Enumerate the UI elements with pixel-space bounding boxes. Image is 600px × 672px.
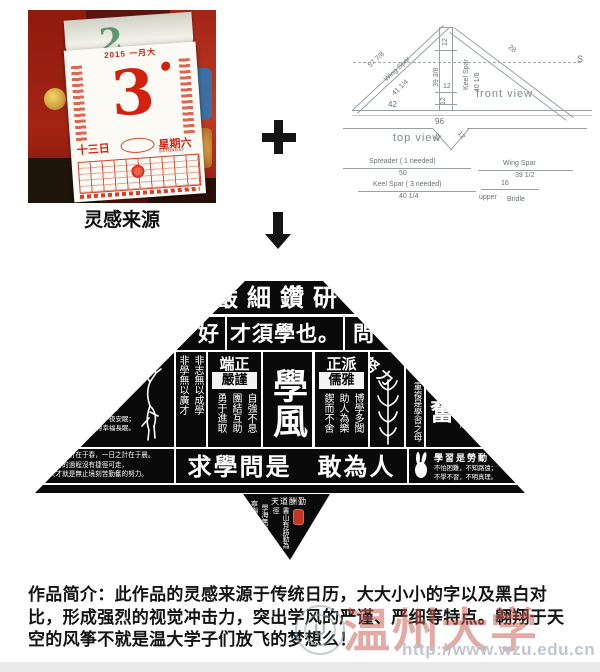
seal-stamp-icon [293, 509, 304, 525]
kite-lefttip-cell: 一年之計在于春，一日之計在于晨。 學習的過程沒有捷徑可走， 天才就是無止境刻苦勤… [35, 449, 174, 483]
kite-bottom-rail [35, 485, 525, 493]
part-wing-line [478, 170, 573, 171]
lefttip-line3: 天才就是無止境刻苦勤奮的努力。 [49, 470, 173, 480]
fen-quote-line2: 你就是赢家。 [459, 421, 501, 432]
calendar-right-column [179, 58, 195, 137]
inspiration-label: 灵感来源 [28, 205, 216, 232]
part-bridle-line [481, 189, 539, 190]
kite-row2-center: 才須學也。 [227, 317, 343, 350]
part-bridle-label: Bridle [507, 196, 525, 203]
dim-keel-label: Keel Spar [463, 59, 470, 90]
ruya-box: 儒雅 [319, 372, 364, 389]
horse-icon [161, 61, 171, 71]
part-wing-name: Wing Spar [503, 160, 536, 167]
university-logo-letter: U [304, 614, 336, 646]
dim-spreader-end: S [577, 54, 583, 64]
qin-character: 勤 [93, 378, 120, 417]
university-logo-icon: U [295, 605, 345, 655]
calendar-day-cn: 十三日 [76, 140, 110, 158]
university-url-watermark: http://www.wzu.edu.cn [402, 640, 595, 660]
duanzheng-columns: 自強不息 團結互助 勇于進取 [211, 393, 258, 445]
kite-proverb-columns: 非志無以成學 非學無以廣才 [176, 352, 206, 447]
part-spreader-len: 50 [399, 170, 407, 177]
plant-icon [376, 378, 400, 446]
keel-line-right [452, 27, 453, 110]
part-wing-len: 39 1/2 [515, 172, 534, 179]
dim-keel-top: 12 [442, 38, 449, 46]
zhengpai-col2: 助人為樂 [335, 393, 350, 445]
calendar-left-column [71, 66, 87, 145]
calendar-sheet: 2015 一月大 3 十三日 星期六 SATURDAY [64, 42, 206, 203]
lefttip-quote: 一年之計在于春，一日之計在于晨。 學習的過程沒有捷徑可走， 天才就是無止境刻苦勤… [49, 451, 173, 480]
dim-base-full: 96 [435, 117, 444, 126]
kite-row2-left: 好 [135, 317, 225, 350]
topview-line-r [467, 128, 587, 129]
part-bridle-len: 16 [501, 180, 509, 187]
zhengpai-col3: 鍥而不舍 [320, 393, 335, 445]
part-spreader-line [343, 168, 471, 169]
dim-wing-inner: 41 1/4 [391, 79, 410, 97]
front-view-label: front view [476, 88, 533, 100]
top-view-label: top view [393, 132, 441, 144]
righttip-line1: 不怕困難，不知路遠； [434, 464, 497, 473]
baseline2 [352, 115, 592, 116]
kite-righttip-cell: 學習是勞動 不怕困難，不知路遠； 不學不習，不明真理。 [409, 449, 525, 483]
zhengpai-columns: 博學多聞 助人為樂 鍥而不舍 [318, 393, 365, 445]
dim-wing-outer: 57 7/8 [367, 51, 386, 69]
calendar-photo: 2 2015 一月大 3 十三日 星期六 SATURDAY [28, 10, 216, 203]
keel-tick-1 [435, 50, 457, 51]
kite-xuefeng-cell: 學風 [263, 352, 312, 447]
kite-row2-right: 問 [345, 317, 435, 350]
dim-base-left: 42 [388, 100, 397, 109]
kite-qin-cell: 勤 勤勞一日，可得一夜安眠； 勤勞一生，可得幸福長眠。 [35, 352, 174, 447]
kite-artwork: 嚴細鑽研 好 才須學也。 問 勤 勤勞一日，可得一夜安眠； 勤勞一生，可得幸福長… [35, 281, 525, 493]
part-spreader-name: Spreader ( 1 needed) [369, 158, 436, 165]
fen-quote-line1: 用心去學， [459, 410, 501, 421]
part-keel-line [358, 191, 476, 192]
topview-line-l [343, 128, 433, 129]
poster-canvas: 2 2015 一月大 3 十三日 星期六 SATURDAY [0, 0, 600, 672]
righttip-line2: 不學不習，不明真理。 [434, 473, 497, 482]
lefttip-line2: 學習的過程沒有捷徑可走， [49, 461, 173, 471]
dim-keel-low: 12 [440, 97, 447, 105]
wing-spar-right-line [453, 27, 573, 118]
dim-right-spar: 28 [507, 44, 517, 54]
tail-motto: 天道酬勤 [271, 496, 307, 507]
deer-icon [131, 366, 169, 442]
rabbit-icon [412, 452, 430, 480]
kite-zhengpai-cell: 正派 儒雅 博學多聞 助人為樂 鍥而不舍 [315, 352, 368, 447]
kite-duanzheng-cell: 端正 嚴謹 自強不息 團結互助 勇于進取 [208, 352, 261, 447]
duanzheng-col3: 勇于進取 [213, 393, 228, 445]
kite-top-motto: 嚴細鑽研 [185, 281, 375, 314]
righttip-header: 學習是勞動 [434, 451, 489, 464]
calendar-page: 2 2015 一月大 3 十三日 星期六 SATURDAY [62, 12, 207, 203]
part-keel-name: Keel Spar ( 3 needed) [373, 181, 442, 188]
keel-tick-2 [435, 92, 457, 93]
tail-col-3: 寧靜致遠 [249, 500, 259, 540]
lefttip-line1: 一年之計在于春，一日之計在于晨。 [49, 451, 173, 461]
fen-quote: 用心去學， 你就是赢家。 [459, 410, 501, 431]
tail-col-1: 書山有路勤為徑 [270, 507, 290, 555]
gold-emblem [44, 88, 66, 110]
calendar-day-number: 3 [94, 52, 171, 135]
fen-character: 奮 [430, 392, 454, 427]
qin-quote-line1: 勤勞一日，可得一夜安眠； [57, 416, 135, 425]
duanzheng-header: 端正 [208, 353, 261, 374]
apex-tick [440, 27, 452, 28]
yanjin-box: 嚴謹 [212, 372, 257, 389]
calendar-oval-badge [120, 137, 155, 154]
duanzheng-col1: 自強不息 [243, 393, 258, 445]
baseline [352, 110, 592, 111]
zhengpai-col1: 博學多聞 [350, 393, 365, 445]
kite-tail: 天道酬勤 書山有路勤為徑 學海無涯苦作舟 寧靜致遠 [243, 494, 330, 560]
kite-plan-diagram: 57 7/8 Wing Spar 41 1/4 28 S 12 39 3/8 K… [333, 12, 595, 210]
righttip-quote: 不怕困難，不知路遠； 不學不習，不明真理。 [434, 464, 497, 482]
kite-chongfu-cell: 重複是學習之母 [406, 352, 424, 447]
dim-keel-mid: 12 [443, 83, 451, 90]
dim-keel-left: 39 3/8 [433, 68, 440, 87]
kite-fen-cell: 奮 用心去學， 你就是赢家。 [426, 352, 525, 447]
qin-quote-line2: 勤勞一生，可得幸福長眠。 [57, 425, 135, 434]
tail-col-2: 學海無涯苦作舟 [259, 504, 269, 554]
part-bridle-upper: upper [479, 194, 497, 201]
qin-quote: 勤勞一日，可得一夜安眠； 勤勞一生，可得幸福長眠。 [57, 416, 135, 434]
duanzheng-col2: 團結互助 [228, 393, 243, 445]
kite-nuli-cell: 努力 [370, 352, 404, 447]
proverb-col-right: 非志無以成學 [190, 355, 205, 444]
part-keel-len: 40 1/4 [399, 193, 418, 200]
bottom-border-strip [0, 662, 600, 672]
proverb-col-left: 非學無以廣才 [176, 355, 190, 444]
kite-row4-motto: 求學問是 敢為人先 [176, 449, 407, 483]
zhengpai-header: 正派 [315, 353, 368, 374]
dim-wing-spar-label: Wing Spar [383, 56, 412, 83]
